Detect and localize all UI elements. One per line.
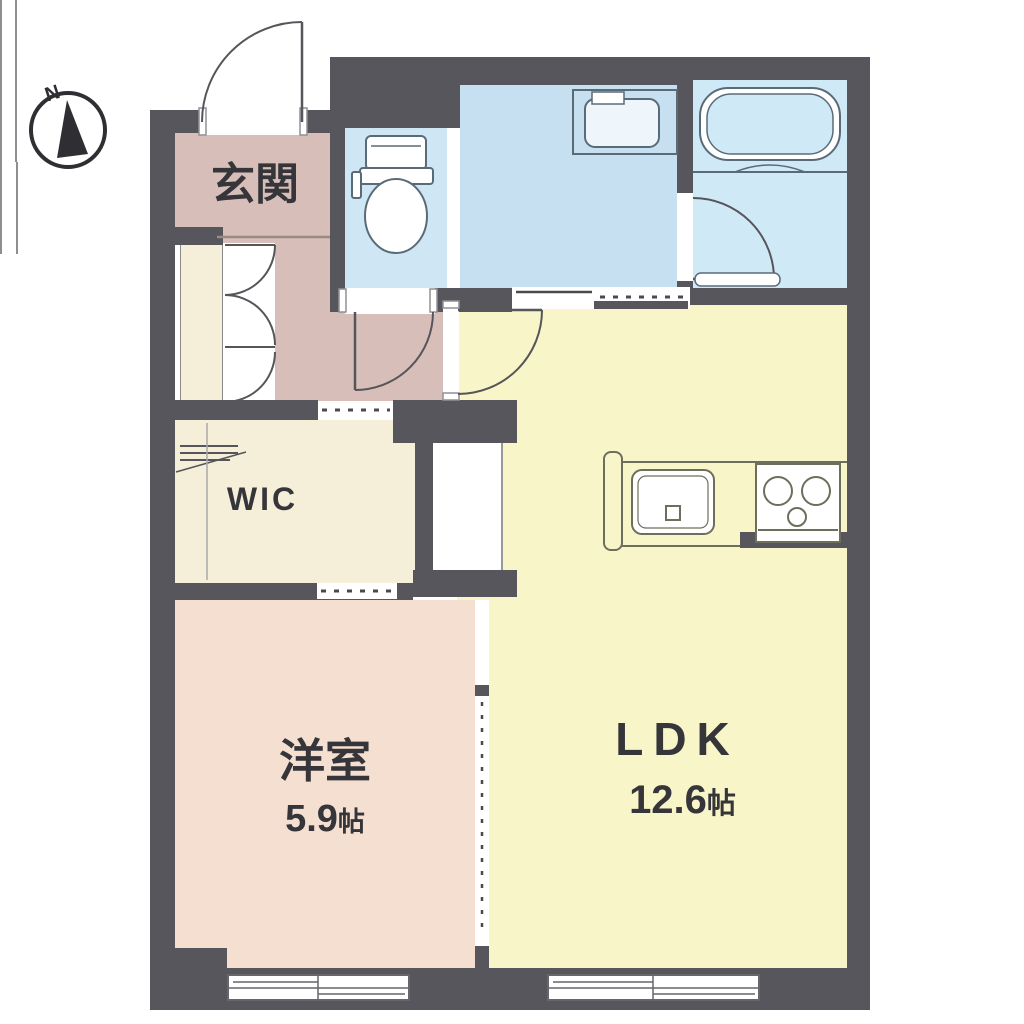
room-ldk-upper xyxy=(457,300,847,600)
genkan-label: 玄関 xyxy=(175,163,335,207)
ldk-size-value: 12.6 xyxy=(629,778,707,822)
wic-label: WIC xyxy=(180,483,345,515)
north-compass-icon: N xyxy=(31,81,105,167)
svg-text:N: N xyxy=(42,81,63,106)
wall-sanitary-a xyxy=(330,288,345,312)
bath-door-opening xyxy=(677,193,693,281)
wall-kitchen-stub xyxy=(740,532,847,548)
wall-right xyxy=(847,57,870,1010)
wall-below-nook xyxy=(413,570,517,597)
western-room-size-unit: 帖 xyxy=(338,807,365,837)
ldk-size: 12.6帖 xyxy=(540,780,825,820)
wall-below-closet xyxy=(150,400,318,420)
storage-nook xyxy=(433,443,503,570)
western-room-label: 洋室 xyxy=(195,738,455,784)
ldk-window xyxy=(547,974,760,1001)
wic-western-opening xyxy=(317,583,397,599)
western-room-size-value: 5.9 xyxy=(285,798,338,840)
toilet-washroom-wall xyxy=(0,0,17,162)
western-ldk-partition xyxy=(0,162,18,254)
floor-plan: N xyxy=(0,0,1024,1024)
hall-ldk-door-opening xyxy=(443,306,459,398)
wall-western-step xyxy=(175,948,227,978)
washroom-slide-opening xyxy=(512,287,690,309)
hall-closet-interior xyxy=(180,243,223,402)
wall-bath-bottom xyxy=(688,288,847,305)
wall-closet-top-stub xyxy=(150,227,223,245)
ldk-label: LDK xyxy=(540,716,815,762)
front-door-opening xyxy=(205,108,302,135)
hall-closet-doors-area xyxy=(223,243,275,402)
wall-left xyxy=(150,110,175,1010)
wall-bath-top xyxy=(680,57,870,80)
wall-mid-block xyxy=(393,400,517,443)
ldk-size-unit: 帖 xyxy=(707,788,736,820)
toilet-door-opening xyxy=(345,288,435,314)
room-washroom xyxy=(460,85,677,290)
western-window xyxy=(227,974,410,1001)
wall-wic-nook xyxy=(415,420,433,580)
room-toilet xyxy=(345,128,447,290)
wall-toilet-block xyxy=(330,57,460,128)
western-room-size: 5.9帖 xyxy=(195,800,455,838)
hall-wic-opening xyxy=(318,401,393,419)
room-bathroom xyxy=(693,80,847,290)
